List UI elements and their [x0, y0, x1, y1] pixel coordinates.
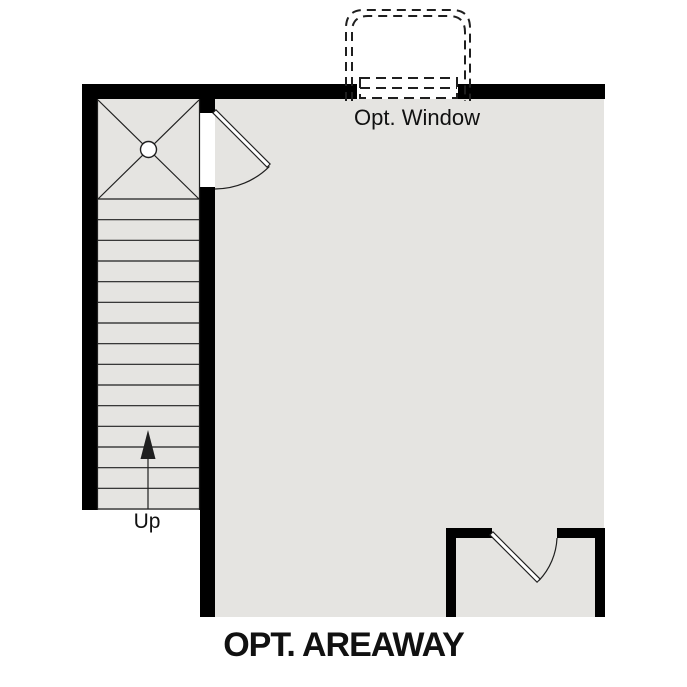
top-wall-right-segment: [458, 84, 605, 99]
stair-wall-lower: [200, 187, 215, 617]
areaway-wall-stub-left: [446, 528, 492, 538]
stair-landing-circle: [141, 142, 157, 158]
left-exterior-wall: [82, 84, 97, 510]
floor-plan-drawing: [0, 0, 687, 687]
main-floor-area: [215, 99, 604, 617]
top-wall-left-segment: [82, 84, 357, 99]
stairs-up-label: Up: [107, 510, 187, 534]
optional-window: [360, 78, 457, 98]
floor-plan: Opt. Window Up OPT. AREAWAY: [0, 0, 687, 687]
plan-title: OPT. AREAWAY: [82, 626, 605, 665]
areaway-left-wall: [446, 528, 456, 617]
window-label: Opt. Window: [337, 105, 497, 131]
stair-wall-upper-stub: [200, 84, 215, 113]
areaway-right-wall: [595, 528, 605, 617]
